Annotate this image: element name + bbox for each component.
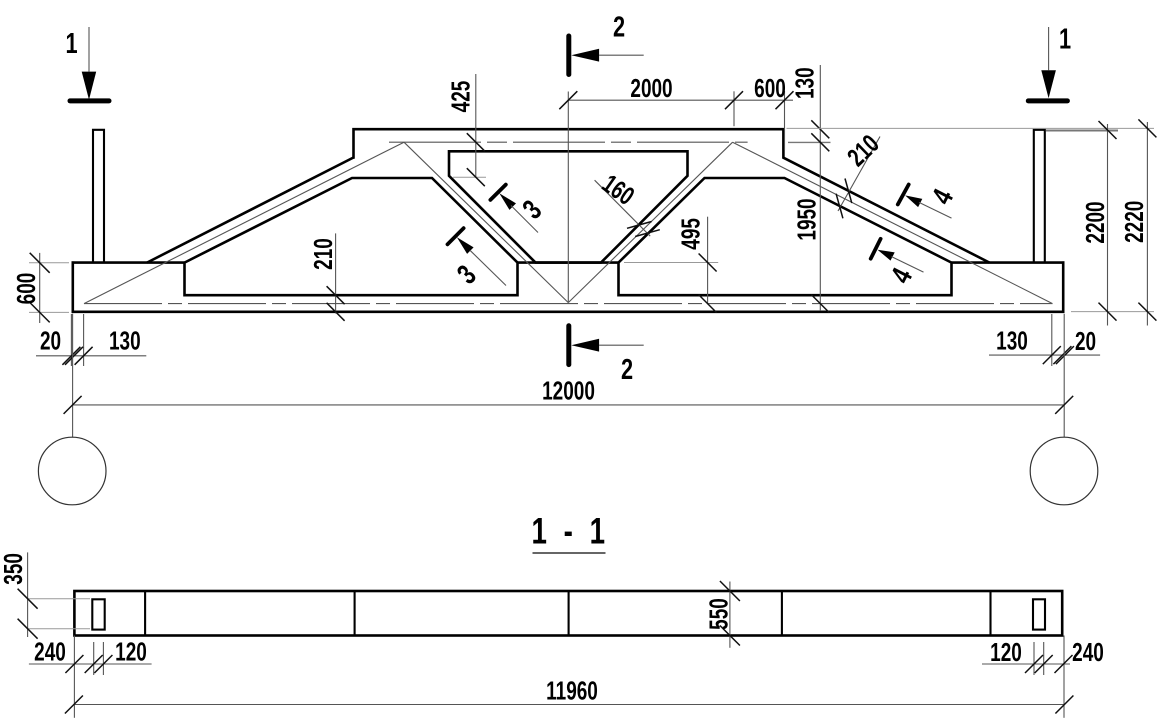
svg-text:550: 550: [704, 598, 734, 630]
svg-text:20: 20: [40, 326, 61, 356]
svg-text:1950: 1950: [792, 198, 822, 240]
svg-text:600: 600: [11, 273, 41, 305]
svg-text:600: 600: [754, 73, 786, 103]
svg-text:1: 1: [1059, 24, 1071, 56]
svg-text:240: 240: [34, 637, 66, 667]
svg-text:350: 350: [0, 553, 28, 585]
svg-text:2220: 2220: [1119, 201, 1149, 243]
svg-text:495: 495: [676, 218, 706, 250]
svg-text:2: 2: [621, 354, 633, 386]
svg-text:1 - 1: 1 - 1: [531, 510, 609, 552]
svg-text:120: 120: [990, 637, 1022, 667]
svg-text:2: 2: [613, 12, 625, 44]
svg-text:240: 240: [1072, 637, 1104, 667]
svg-text:130: 130: [789, 67, 819, 99]
svg-text:2000: 2000: [630, 73, 672, 103]
svg-text:20: 20: [1075, 326, 1096, 356]
svg-text:12000: 12000: [542, 376, 595, 406]
svg-text:130: 130: [996, 326, 1028, 356]
svg-text:2200: 2200: [1080, 201, 1110, 243]
svg-text:1: 1: [65, 28, 77, 60]
svg-text:120: 120: [115, 637, 147, 667]
svg-text:210: 210: [308, 238, 338, 270]
svg-text:130: 130: [109, 326, 141, 356]
svg-text:425: 425: [446, 80, 476, 112]
svg-text:11960: 11960: [546, 676, 598, 706]
